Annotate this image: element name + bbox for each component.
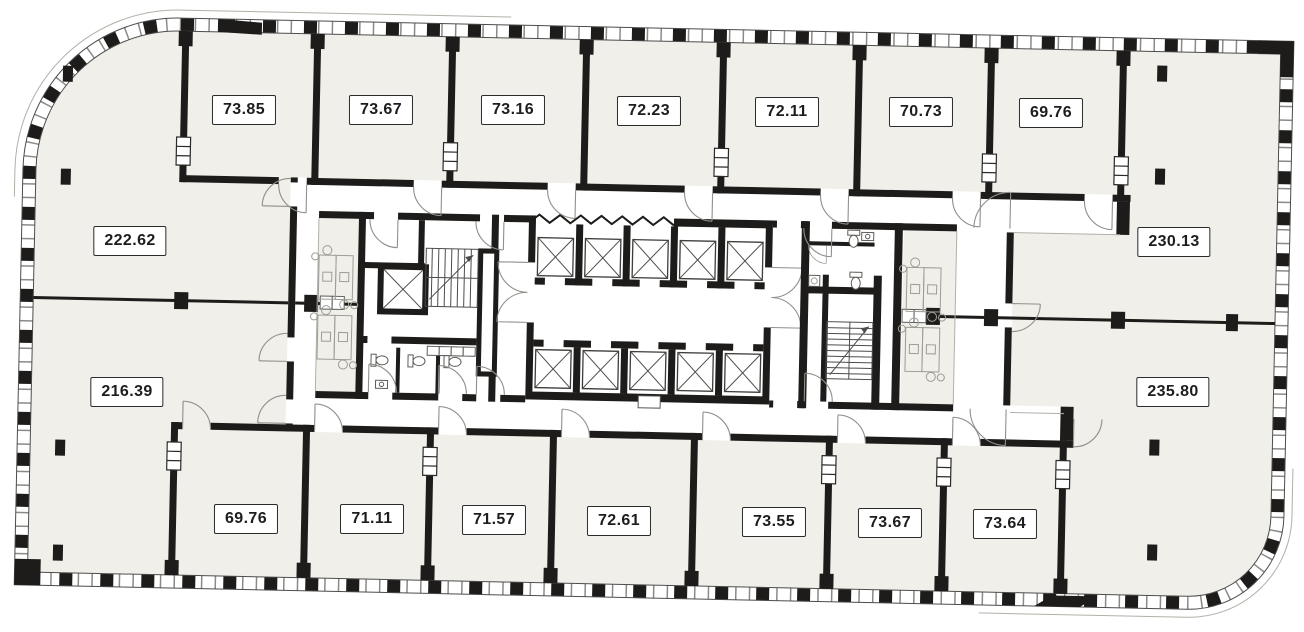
floor-plan: 73.85 73.67 73.16 72.23 72.11 70.73 69.7… [0,0,1304,632]
room-area-label: 216.39 [90,377,163,407]
room-area-label: 71.57 [462,505,526,535]
room-area-label: 72.11 [755,97,819,127]
elevator-shaft [537,238,573,277]
room-area-label: 73.16 [481,95,545,125]
room-area-label: 73.85 [212,95,276,125]
corner-block-bottomleft [14,559,41,586]
room-area-label: 73.67 [349,95,413,125]
room-area-label: 230.13 [1137,227,1210,257]
room-area-label: 72.23 [617,96,681,126]
floor-plan-canvas [0,0,1304,632]
room-area-label: 70.73 [889,97,953,127]
room-area-label: 72.61 [587,506,651,536]
room-area-label: 73.67 [858,508,922,538]
room-area-label: 73.64 [973,509,1037,539]
room-area-label: 235.80 [1136,377,1209,407]
room-area-label: 71.11 [340,504,404,534]
room-area-label: 69.76 [214,504,278,534]
room-area-label: 222.62 [93,226,166,256]
room-area-label: 69.76 [1019,98,1083,128]
room-area-label: 73.55 [742,507,806,537]
core-shaft [478,251,497,374]
